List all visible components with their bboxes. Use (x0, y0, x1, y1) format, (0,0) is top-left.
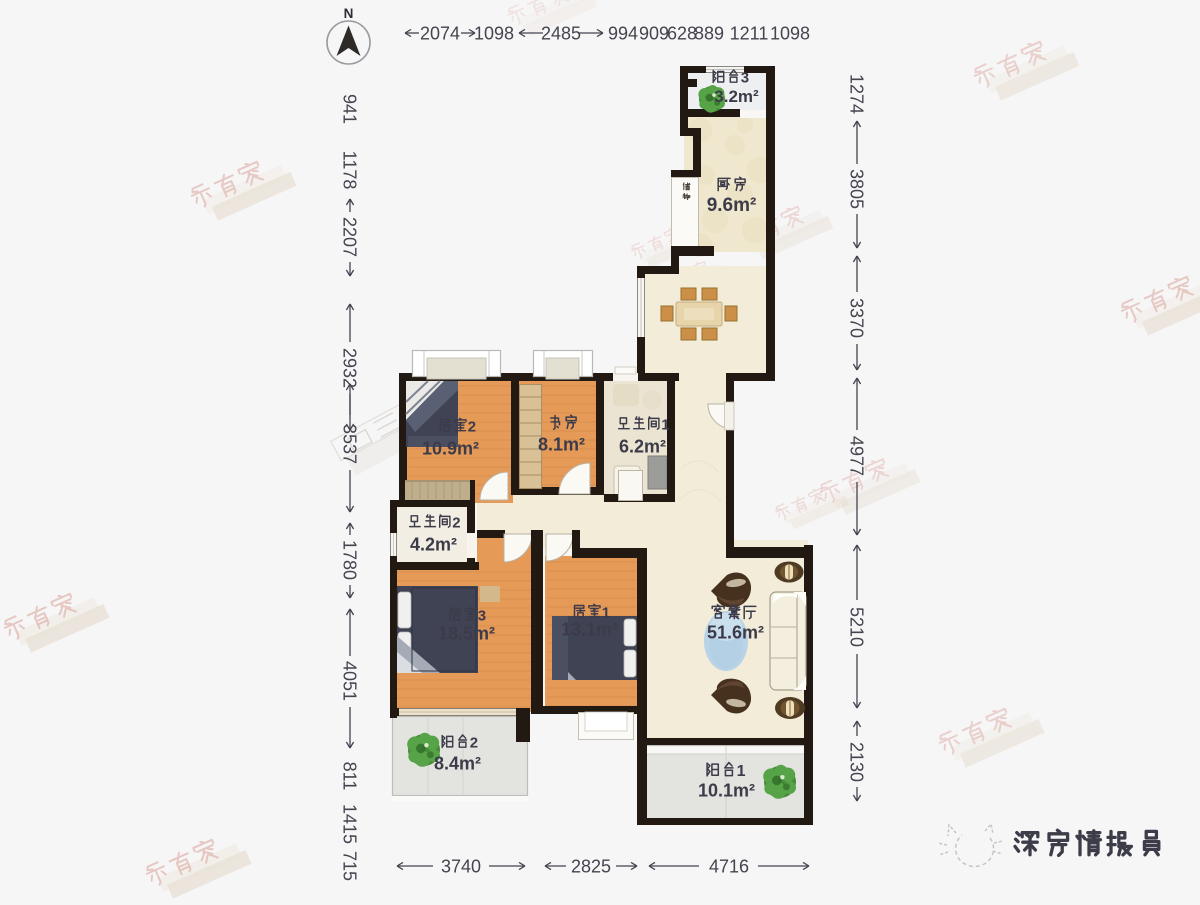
svg-text:1780: 1780 (340, 540, 360, 580)
svg-text:3740: 3740 (441, 856, 481, 876)
svg-text:2074: 2074 (420, 23, 460, 43)
svg-text:6.2m²: 6.2m² (619, 437, 666, 457)
svg-text:3805: 3805 (847, 169, 867, 209)
svg-text:4977: 4977 (847, 436, 867, 476)
svg-text:941: 941 (340, 94, 360, 124)
svg-text:2825: 2825 (571, 856, 611, 876)
svg-text:2: 2 (470, 734, 478, 751)
svg-text:994: 994 (608, 23, 638, 43)
svg-text:8.4m²: 8.4m² (434, 754, 481, 774)
svg-text:1: 1 (737, 763, 746, 780)
svg-text:3537: 3537 (340, 424, 360, 464)
svg-text:1098: 1098 (474, 23, 514, 43)
svg-text:N: N (344, 6, 354, 21)
svg-text:2932: 2932 (340, 348, 360, 388)
svg-text:909: 909 (639, 23, 669, 43)
svg-text:1274: 1274 (847, 74, 867, 114)
svg-text:10.9m²: 10.9m² (422, 439, 479, 459)
svg-text:4.2m²: 4.2m² (410, 535, 457, 555)
svg-text:2485: 2485 (541, 23, 581, 43)
svg-text:10.1m²: 10.1m² (698, 781, 755, 801)
svg-text:1: 1 (661, 416, 669, 433)
svg-text:8.1m²: 8.1m² (538, 435, 585, 455)
svg-text:1415: 1415 (340, 804, 360, 844)
svg-text:715: 715 (340, 851, 360, 881)
svg-text:18.5m²: 18.5m² (438, 624, 495, 644)
svg-text:13.1m²: 13.1m² (561, 620, 618, 640)
svg-text:628: 628 (667, 23, 697, 43)
svg-text:4716: 4716 (709, 856, 749, 876)
svg-text:811: 811 (340, 762, 360, 791)
svg-text:889: 889 (694, 23, 724, 43)
svg-text:2207: 2207 (340, 217, 360, 257)
svg-text:9.6m²: 9.6m² (707, 195, 757, 216)
svg-text:51.6m²: 51.6m² (707, 623, 764, 643)
svg-text:3: 3 (741, 69, 749, 86)
svg-text:5210: 5210 (847, 607, 867, 647)
svg-text:1178: 1178 (340, 151, 360, 190)
svg-text:1098: 1098 (770, 23, 810, 43)
svg-text:4051: 4051 (340, 661, 360, 701)
svg-text:2130: 2130 (847, 742, 867, 782)
svg-text:1211: 1211 (730, 23, 769, 43)
svg-text:2: 2 (468, 418, 476, 435)
svg-text:3: 3 (478, 607, 486, 624)
svg-text:2: 2 (452, 514, 460, 531)
svg-text:3.2m²: 3.2m² (714, 87, 759, 106)
svg-text:3370: 3370 (847, 298, 867, 338)
